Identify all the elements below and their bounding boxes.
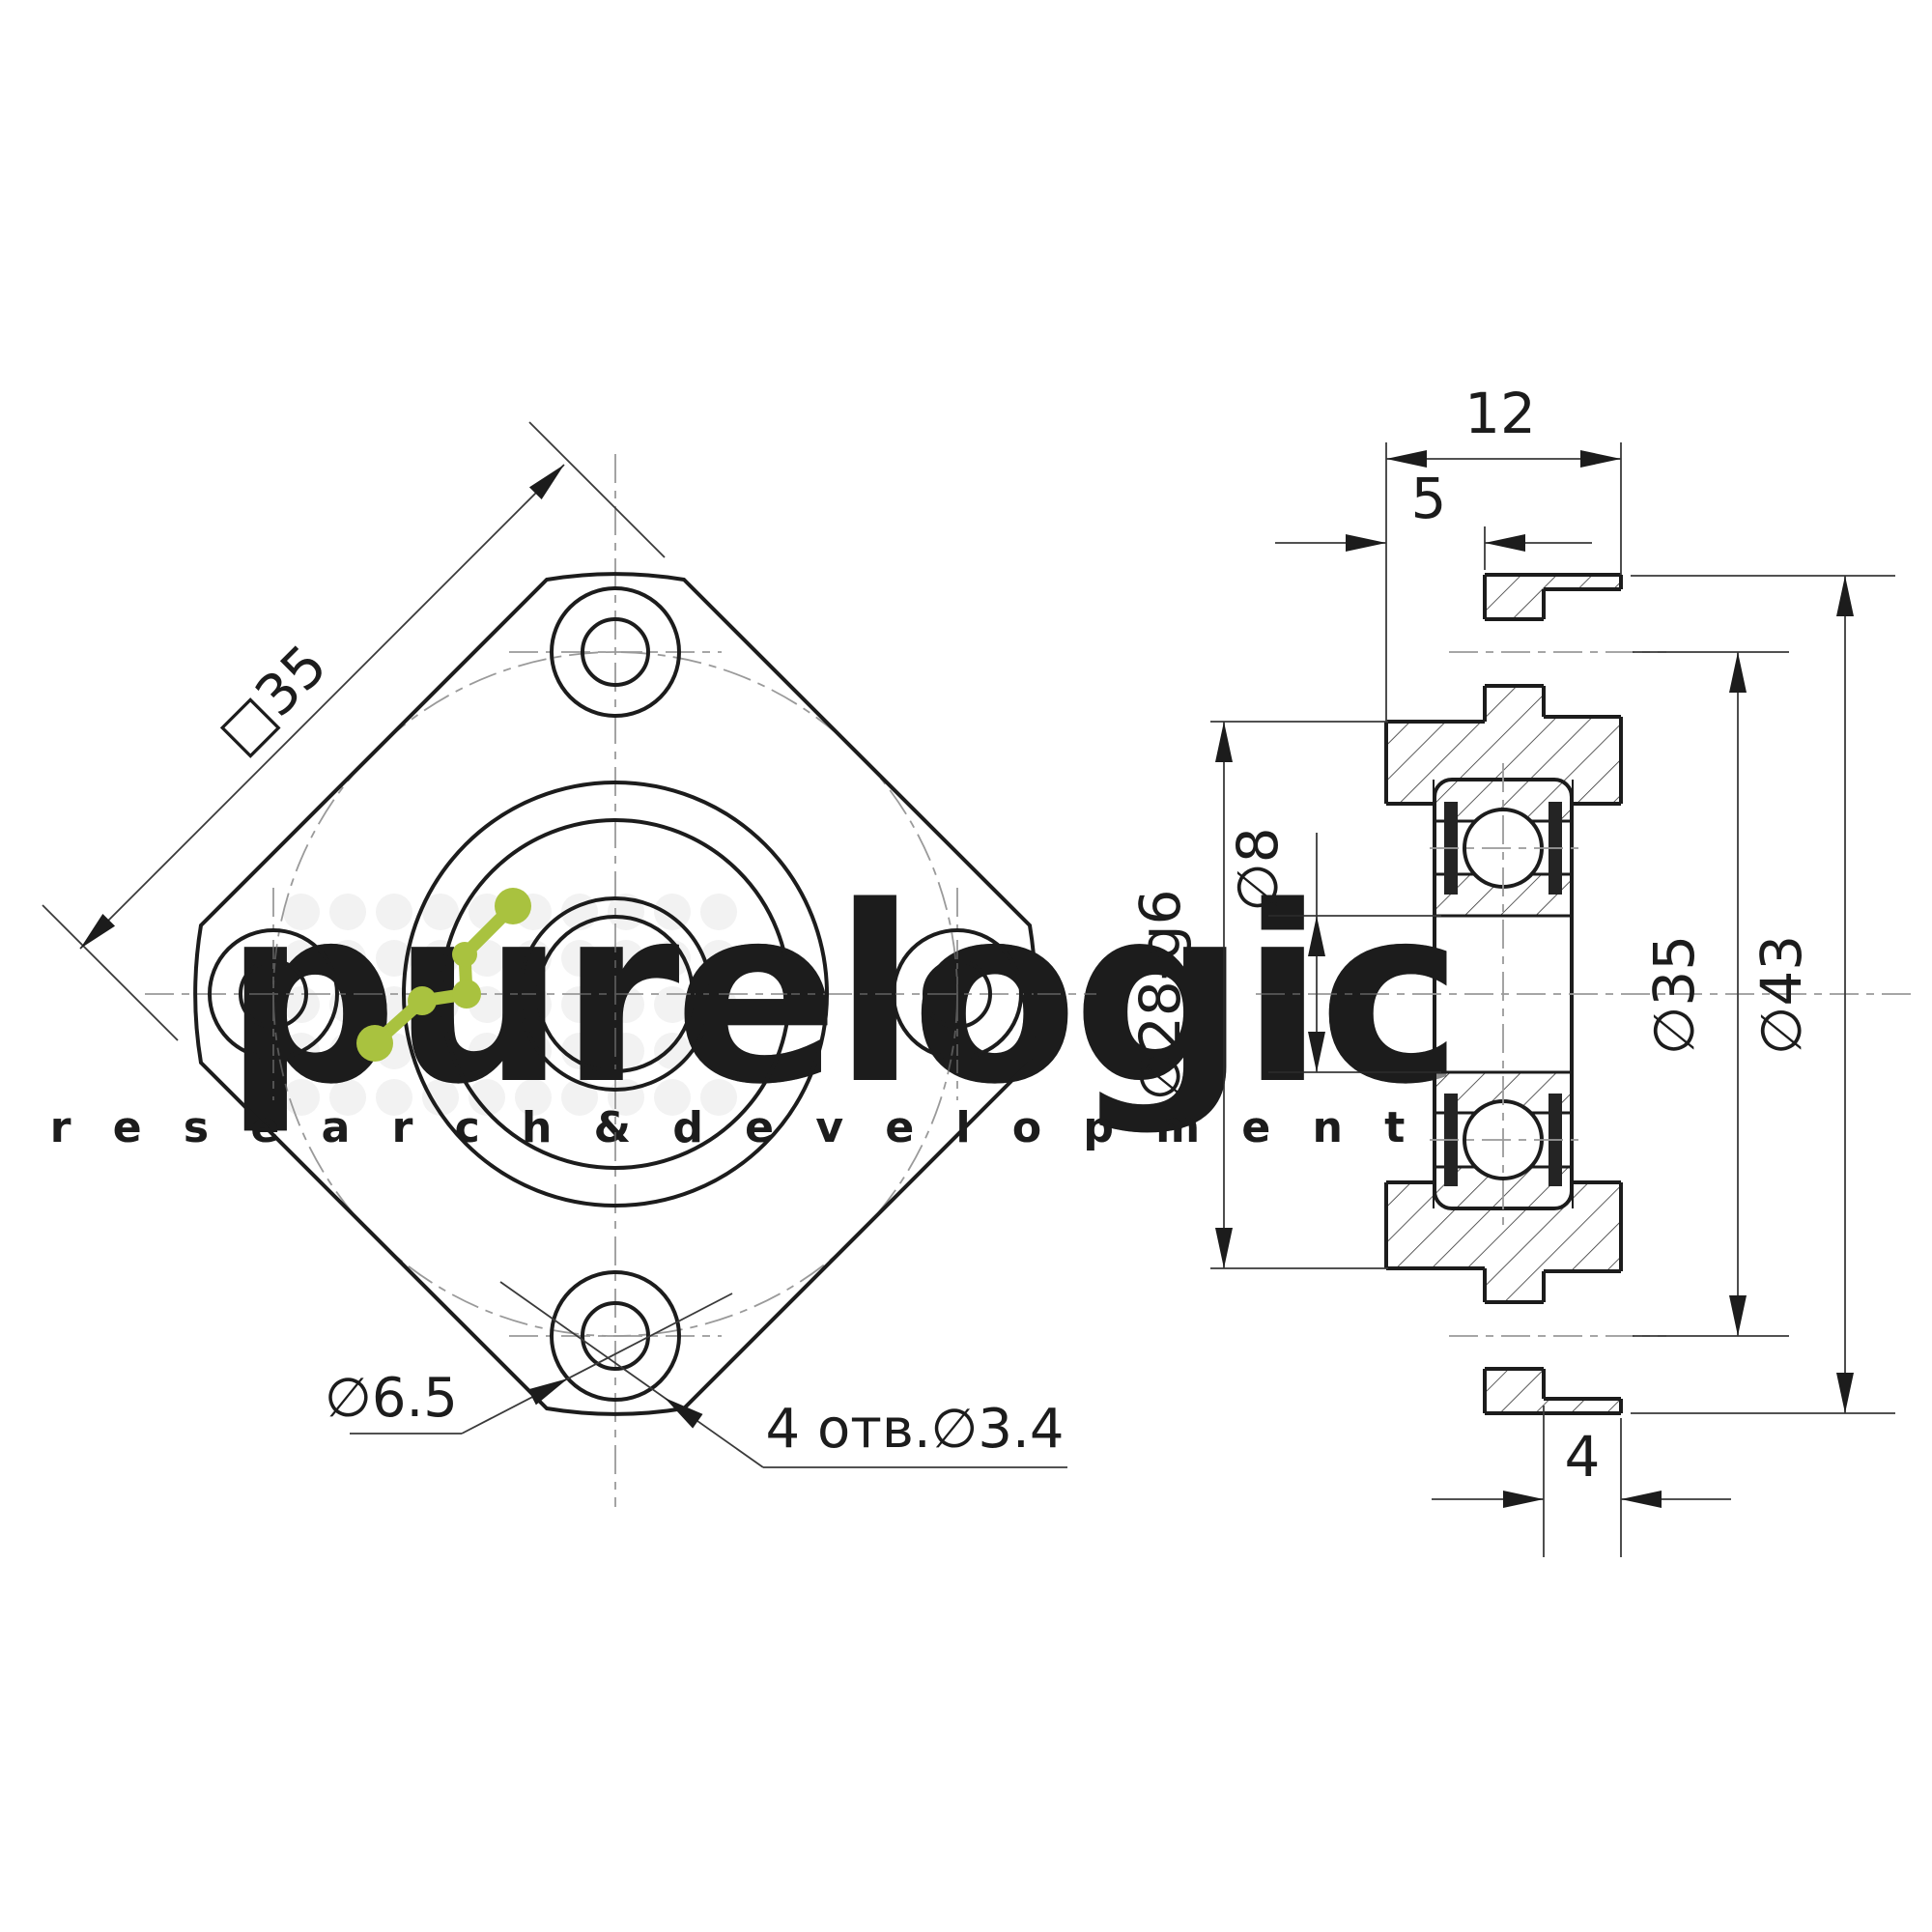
technical-drawing: purelogic r e s e a r c h & d e v e l o … bbox=[0, 0, 1932, 1932]
watermark-tagline-over: r e s e a r c h & d e v e l o p m e n t bbox=[50, 1103, 1419, 1152]
dim-flange-dia: ∅43 bbox=[1748, 935, 1814, 1055]
dim-spigot-length: 5 bbox=[1411, 466, 1447, 531]
label-holes-note: 4 отв.∅3.4 bbox=[766, 1398, 1065, 1461]
label-counterbore-dia: ∅6.5 bbox=[325, 1367, 458, 1430]
watermark-overlay: purelogic r e s e a r c h & d e v e l o … bbox=[50, 855, 1458, 1152]
dim-total-width: 12 bbox=[1464, 381, 1536, 446]
dim-bolt-circle-dia: ∅35 bbox=[1641, 935, 1707, 1055]
drawing-page: purelogic r e s e a r c h & d e v e l o … bbox=[0, 0, 1932, 1932]
dim-counterbore-depth: 4 bbox=[1565, 1424, 1601, 1490]
dim-square: □35 bbox=[205, 632, 339, 766]
